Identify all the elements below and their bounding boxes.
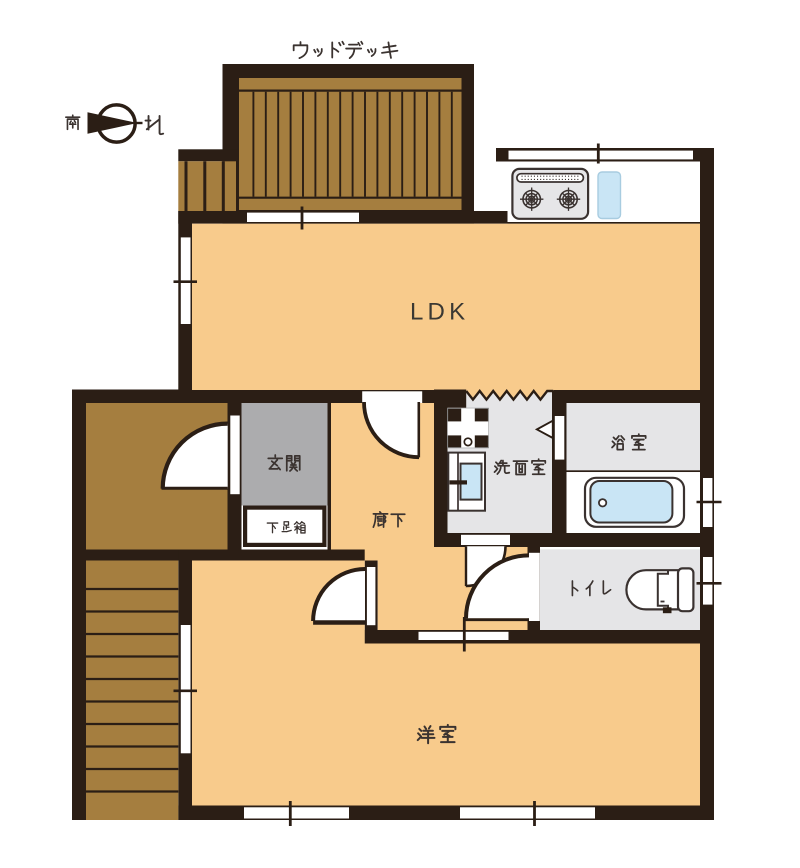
svg-text:LDK: LDK xyxy=(410,299,469,326)
